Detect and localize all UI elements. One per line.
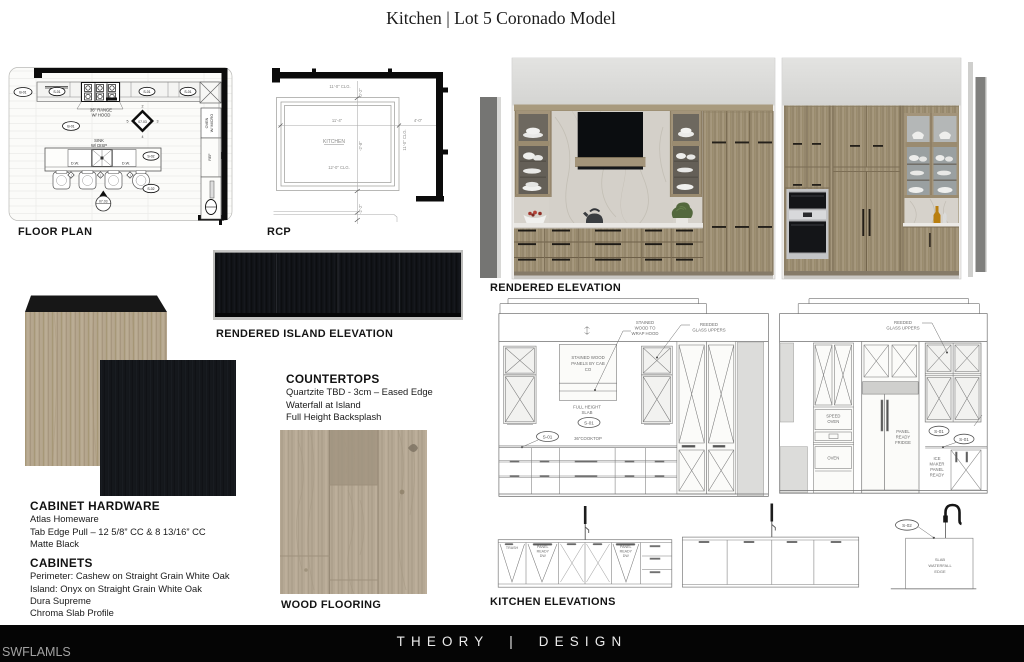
svg-text:PANELS BY CAB: PANELS BY CAB [571, 361, 605, 366]
svg-text:EDGE: EDGE [934, 569, 946, 574]
svg-text:SLAB: SLAB [582, 410, 593, 415]
svg-text:W/ DISP: W/ DISP [91, 143, 107, 148]
svg-text:CO: CO [585, 367, 592, 372]
svg-text:11'-0" CLG.: 11'-0" CLG. [329, 84, 350, 89]
svg-text:36"COOKTOP: 36"COOKTOP [574, 436, 602, 441]
svg-text:S-01: S-01 [143, 90, 150, 94]
svg-text:FRIDGE: FRIDGE [895, 440, 911, 445]
svg-text:B-01: B-01 [19, 91, 26, 95]
svg-text:OVEN: OVEN [827, 419, 839, 424]
svg-text:REF: REF [208, 153, 212, 161]
svg-text:2: 2 [142, 105, 144, 109]
svg-text:PANEL: PANEL [537, 545, 549, 549]
svg-text:S-01: S-01 [959, 437, 969, 442]
svg-text:S-02: S-02 [147, 187, 154, 191]
svg-text:W/ MICRO: W/ MICRO [210, 114, 214, 132]
svg-text:KITCHEN: KITCHEN [323, 139, 345, 145]
svg-text:3: 3 [157, 120, 159, 124]
svg-text:STAINED: STAINED [636, 320, 654, 325]
svg-text:DW: DW [540, 554, 547, 558]
svg-text:READY: READY [896, 435, 911, 440]
svg-text:DW: DW [623, 554, 630, 558]
svg-text:OVEN: OVEN [827, 456, 839, 461]
svg-text:WOOD TO: WOOD TO [635, 326, 657, 331]
svg-text:PANEL: PANEL [620, 545, 632, 549]
svg-text:GLASS UPPERS: GLASS UPPERS [692, 328, 725, 333]
svg-text:REEDED: REEDED [894, 320, 912, 325]
svg-text:D.W.: D.W. [122, 162, 130, 166]
svg-text:STAINED WOOD: STAINED WOOD [571, 355, 604, 360]
svg-text:FULL HEIGHT: FULL HEIGHT [573, 405, 601, 410]
svg-text:11'-4": 11'-4" [332, 118, 343, 123]
svg-text:WATERFALL: WATERFALL [928, 563, 952, 568]
svg-text:S-02: S-02 [147, 155, 154, 159]
svg-text:-0'-2": -0'-2" [358, 88, 363, 98]
svg-text:W/ HOOD: W/ HOOD [92, 113, 111, 118]
svg-text:07.03: 07.03 [138, 120, 147, 124]
svg-text:SLAB: SLAB [935, 557, 946, 562]
svg-text:SPEED: SPEED [826, 414, 840, 419]
svg-text:-2'-2": -2'-2" [358, 204, 363, 214]
svg-text:D.W.: D.W. [71, 162, 79, 166]
svg-text:11'-0" CLG.: 11'-0" CLG. [402, 129, 407, 150]
svg-text:PANEL: PANEL [930, 467, 944, 472]
svg-text:ICE: ICE [934, 456, 941, 461]
svg-text:B-01: B-01 [67, 125, 74, 129]
svg-text:4'-0": 4'-0" [414, 118, 423, 123]
svg-text:READY: READY [930, 473, 945, 478]
svg-text:S-01: S-01 [53, 90, 60, 94]
svg-text:S-01: S-01 [934, 429, 944, 434]
svg-text:WRAP HOOD: WRAP HOOD [632, 331, 659, 336]
svg-text:PANEL: PANEL [896, 429, 910, 434]
svg-text:12'-0" CLG.: 12'-0" CLG. [328, 165, 350, 170]
svg-text:-2'-8": -2'-8" [358, 141, 363, 151]
svg-text:GLASS UPPERS: GLASS UPPERS [886, 326, 919, 331]
svg-text:S-01: S-01 [584, 420, 594, 425]
svg-text:READY: READY [620, 550, 633, 554]
svg-text:4: 4 [142, 135, 144, 139]
svg-text:MAKER: MAKER [930, 462, 945, 467]
svg-text:S-01: S-01 [184, 90, 191, 94]
svg-text:S-01: S-01 [543, 434, 553, 439]
svg-text:READY: READY [537, 550, 550, 554]
svg-text:07.03: 07.03 [99, 200, 108, 204]
svg-text:S-02: S-02 [902, 523, 912, 528]
svg-text:OVEN: OVEN [205, 117, 209, 128]
svg-text:TRASH: TRASH [506, 546, 519, 550]
svg-text:REEDED: REEDED [700, 322, 718, 327]
svg-text:5: 5 [127, 120, 129, 124]
